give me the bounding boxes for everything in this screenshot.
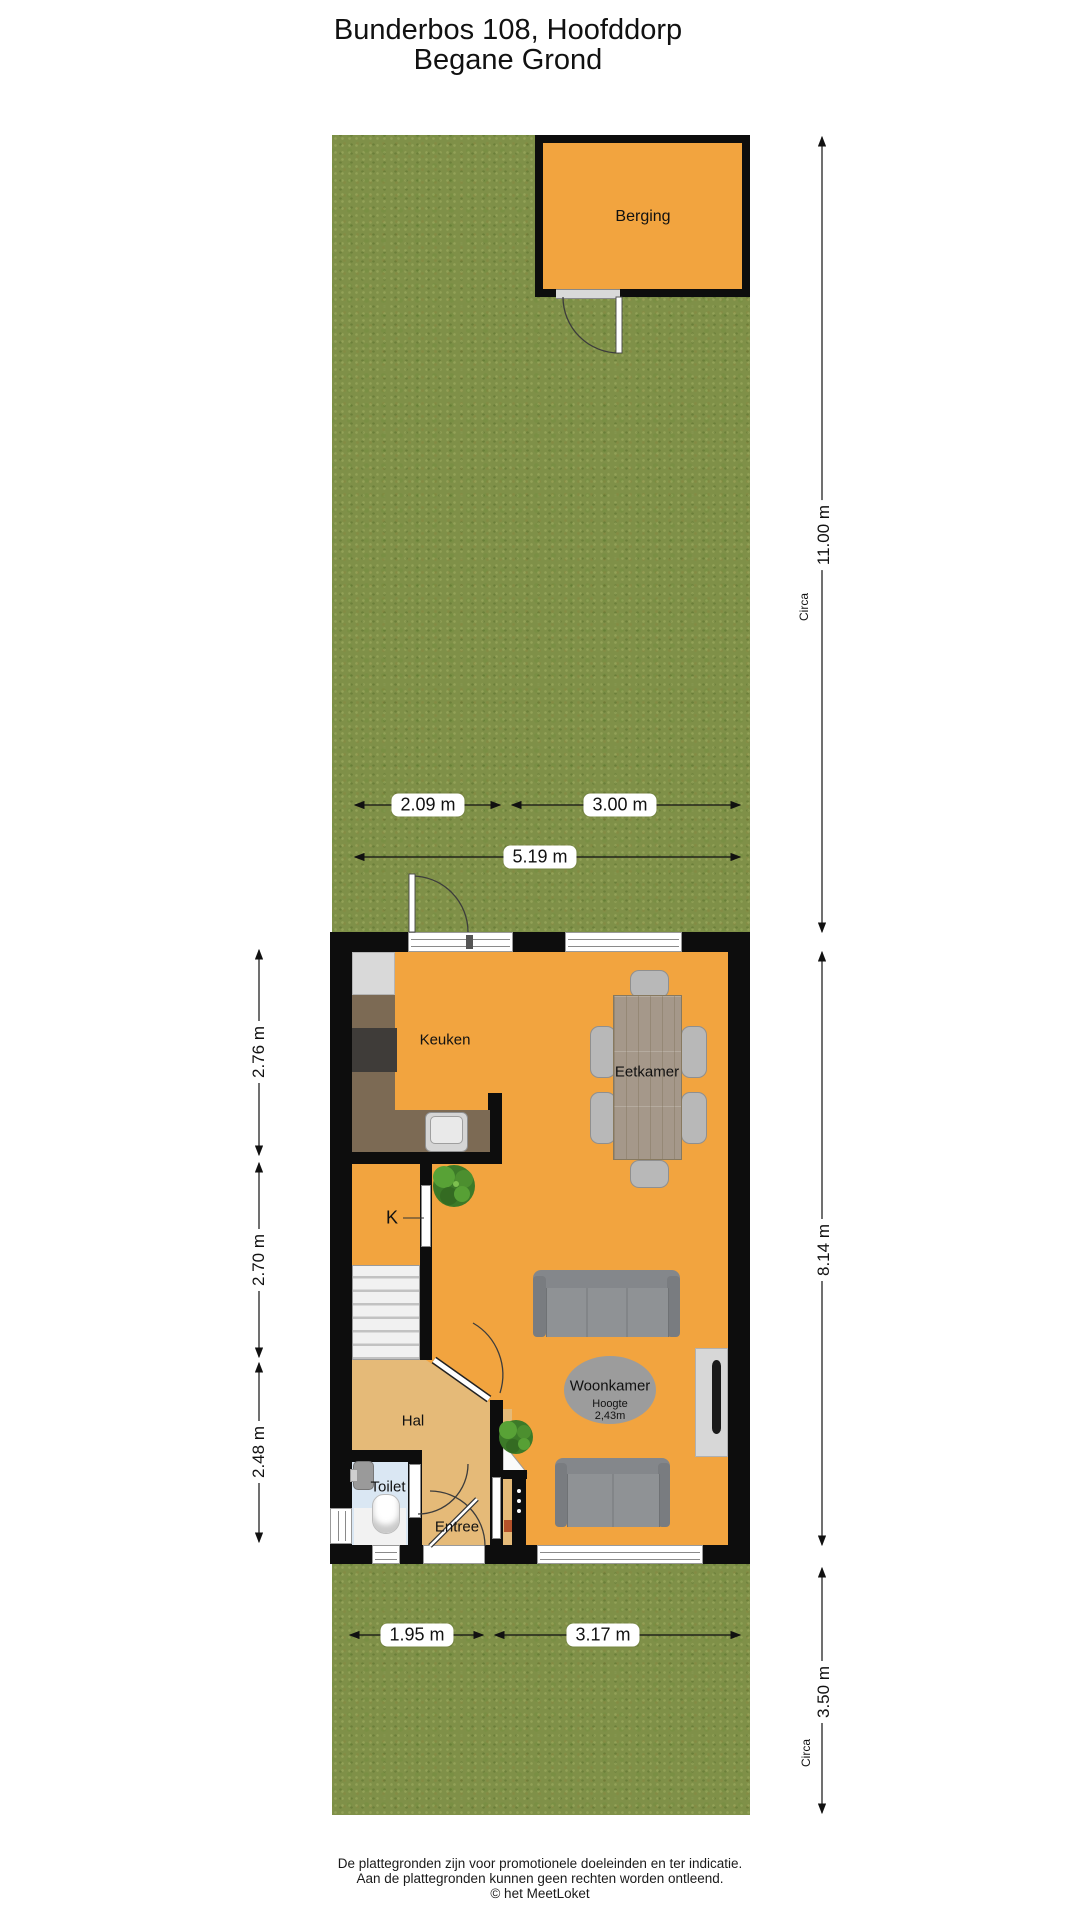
footer-disclaimer-2: Aan de plattegronden kunnen geen rechten… [0, 1871, 1080, 1886]
dim-garden-bottom-right: 3.17 m [566, 1624, 639, 1647]
dim-right-garden-top: 11.00 m [814, 500, 834, 570]
dim-circa-top: Circa [797, 588, 811, 626]
label-hoogte: Hoogte [592, 1398, 627, 1410]
room-label-woonkamer: Woonkamer [570, 1378, 651, 1395]
footer-copyright: © het MeetLoket [0, 1886, 1080, 1901]
dimension-lines [259, 137, 822, 1813]
dim-garden-bottom-left: 1.95 m [380, 1624, 453, 1647]
room-label-entree: Entree [435, 1519, 479, 1536]
door-swing-arcs [412, 297, 619, 1546]
floorplan-canvas: Bunderbos 108, Hoofddorp Begane Grond [0, 0, 1080, 1920]
dim-right-house: 8.14 m [814, 1219, 834, 1281]
room-label-toilet: Toilet [370, 1479, 405, 1496]
room-label-hal: Hal [402, 1413, 425, 1430]
dim-circa-bottom: Circa [799, 1734, 813, 1772]
room-label-eetkamer: Eetkamer [615, 1064, 679, 1081]
dim-left-middle: 2.70 m [249, 1229, 269, 1291]
dim-garden-top-total: 5.19 m [503, 846, 576, 869]
tree-kitchen [433, 1165, 475, 1207]
footer-disclaimer-1: De plattegronden zijn voor promotionele … [0, 1856, 1080, 1871]
dim-right-garden-bottom: 3.50 m [814, 1661, 834, 1723]
overlay-layer [0, 0, 1080, 1920]
room-label-keuken: Keuken [420, 1032, 471, 1049]
room-label-berging: Berging [615, 208, 670, 226]
dim-garden-top-right: 3.00 m [583, 794, 656, 817]
dim-left-bottom: 2.48 m [249, 1421, 269, 1483]
door-leaves [409, 297, 622, 1546]
label-hoogte-value: 2,43m [595, 1410, 626, 1422]
room-label-closet: K [386, 1208, 398, 1229]
dim-left-top: 2.76 m [249, 1021, 269, 1083]
dim-garden-top-left: 2.09 m [391, 794, 464, 817]
tree-hall [499, 1420, 533, 1454]
